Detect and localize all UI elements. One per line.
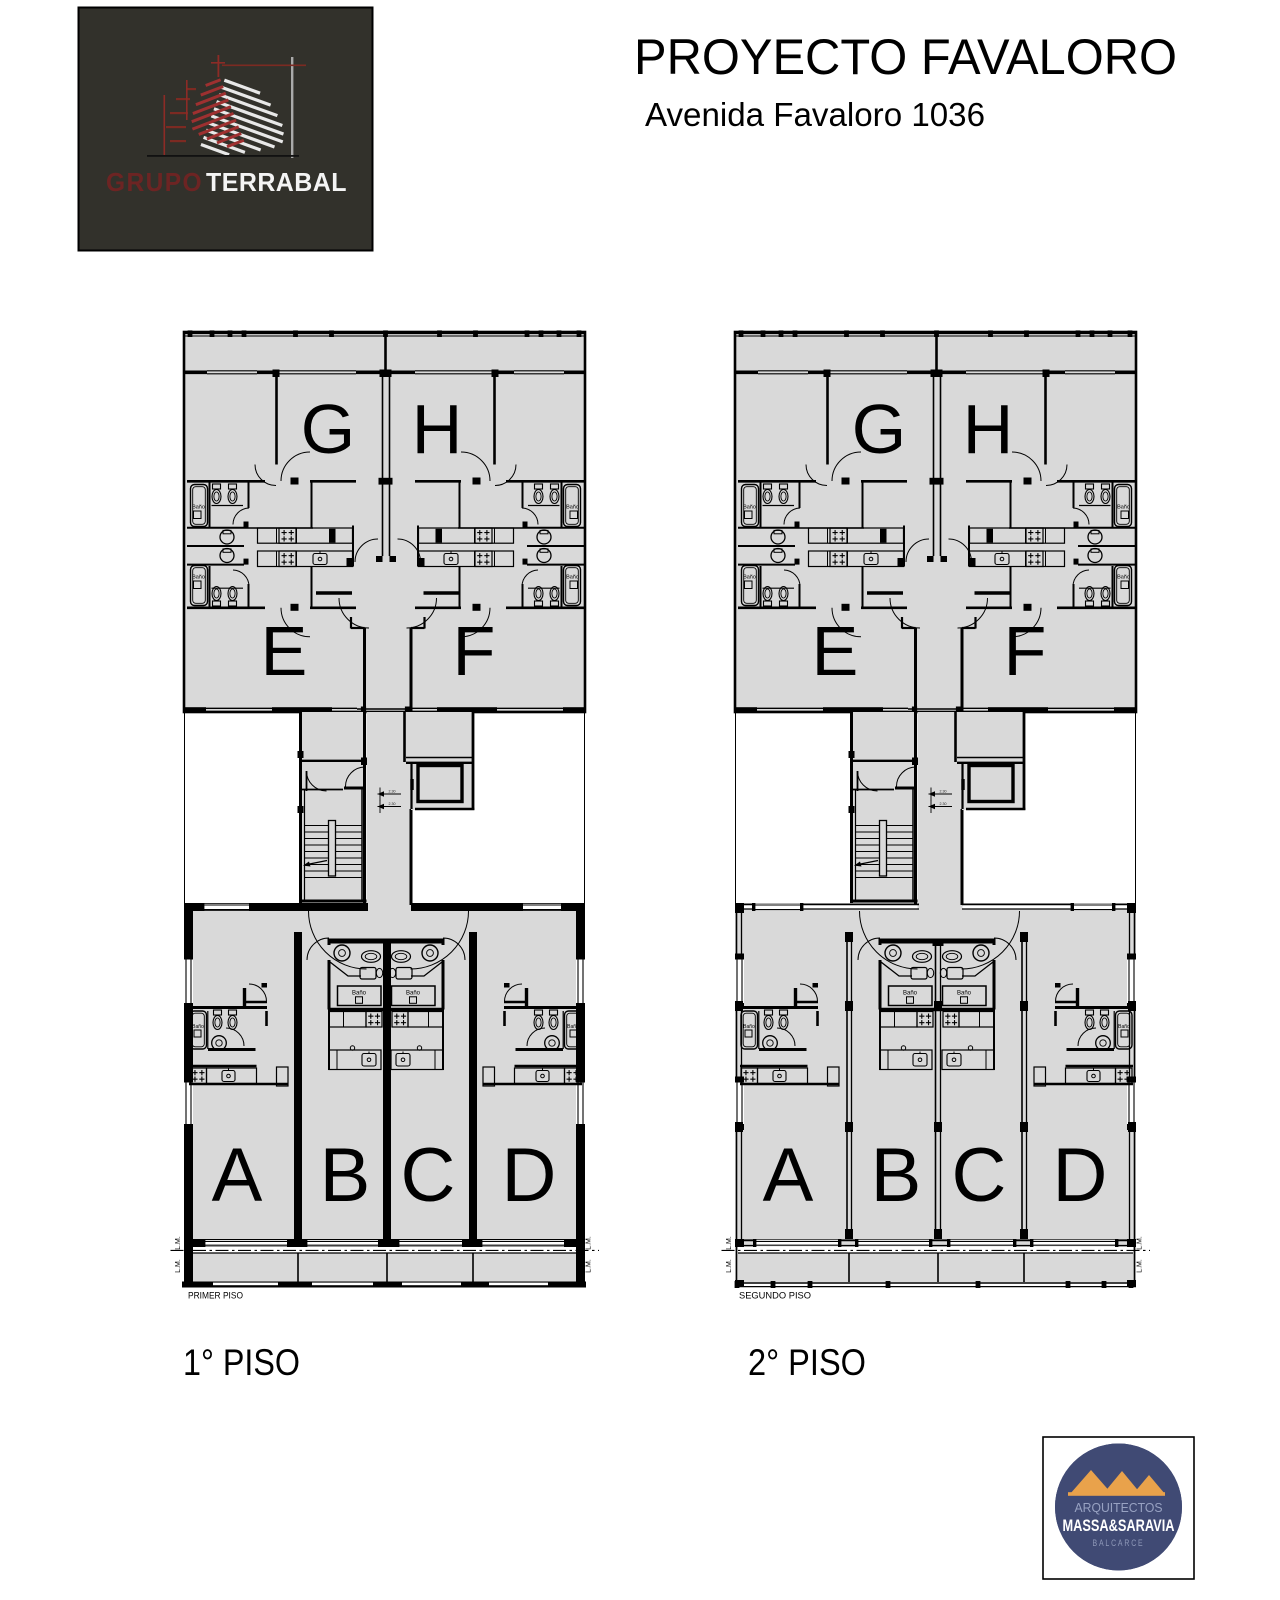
svg-text:G: G <box>301 390 355 468</box>
svg-text:A: A <box>763 1133 814 1218</box>
svg-text:Baño: Baño <box>192 575 205 581</box>
svg-text:2.30: 2.30 <box>940 790 947 794</box>
svg-text:E: E <box>261 612 308 690</box>
svg-text:D: D <box>502 1133 557 1218</box>
svg-text:L.M.: L.M. <box>1137 1236 1144 1250</box>
svg-text:H: H <box>963 390 1014 468</box>
svg-text:BALCARCE: BALCARCE <box>1093 1538 1145 1549</box>
svg-text:Baño: Baño <box>1117 575 1130 581</box>
svg-text:Baño: Baño <box>903 991 918 997</box>
svg-text:GRUPO: GRUPO <box>106 167 203 197</box>
svg-text:C: C <box>952 1133 1007 1218</box>
svg-text:Baño: Baño <box>566 505 579 511</box>
svg-text:A: A <box>212 1133 263 1218</box>
svg-text:L.M.: L.M. <box>586 1236 593 1250</box>
svg-text:Baño: Baño <box>957 991 972 997</box>
svg-text:Baño: Baño <box>743 1024 755 1030</box>
svg-text:Baño: Baño <box>566 575 579 581</box>
svg-text:C: C <box>401 1133 456 1218</box>
svg-text:Baño: Baño <box>192 505 205 511</box>
svg-text:L.M.: L.M. <box>726 1259 733 1273</box>
svg-text:L.M.: L.M. <box>726 1236 733 1250</box>
svg-text:F: F <box>1004 612 1047 690</box>
svg-text:Baño: Baño <box>1118 1024 1130 1030</box>
svg-text:D: D <box>1053 1133 1108 1218</box>
svg-text:1° PISO: 1° PISO <box>183 1342 300 1383</box>
svg-text:Baño: Baño <box>352 991 367 997</box>
svg-text:MASSA&SARAVIA: MASSA&SARAVIA <box>1063 1517 1175 1535</box>
svg-text:2.30: 2.30 <box>940 802 947 806</box>
svg-text:L.M.: L.M. <box>1137 1259 1144 1273</box>
svg-text:Baño: Baño <box>567 1024 579 1030</box>
svg-text:TERRABAL: TERRABAL <box>206 167 347 197</box>
svg-text:ARQUITECTOS: ARQUITECTOS <box>1075 1501 1163 1515</box>
svg-text:L.M.: L.M. <box>175 1259 182 1273</box>
svg-text:Baño: Baño <box>743 575 756 581</box>
svg-text:G: G <box>852 390 906 468</box>
svg-text:SEGUNDO PISO: SEGUNDO PISO <box>739 1291 811 1302</box>
svg-text:2.30: 2.30 <box>389 790 396 794</box>
svg-text:Baño: Baño <box>406 991 421 997</box>
svg-text:L.M.: L.M. <box>586 1259 593 1273</box>
svg-text:PRIMER PISO: PRIMER PISO <box>188 1291 243 1302</box>
svg-text:H: H <box>412 390 463 468</box>
svg-text:2° PISO: 2° PISO <box>748 1342 866 1383</box>
svg-text:Baño: Baño <box>1117 505 1130 511</box>
svg-text:B: B <box>871 1133 922 1218</box>
svg-text:E: E <box>812 612 859 690</box>
svg-text:L.M.: L.M. <box>175 1236 182 1250</box>
svg-text:Baño: Baño <box>743 505 756 511</box>
svg-text:2.30: 2.30 <box>389 802 396 806</box>
svg-text:Avenida Favaloro 1036: Avenida Favaloro 1036 <box>645 96 985 133</box>
svg-text:B: B <box>320 1133 371 1218</box>
svg-text:F: F <box>453 612 496 690</box>
svg-text:PROYECTO FAVALORO: PROYECTO FAVALORO <box>634 29 1177 85</box>
svg-text:Baño: Baño <box>192 1024 204 1030</box>
